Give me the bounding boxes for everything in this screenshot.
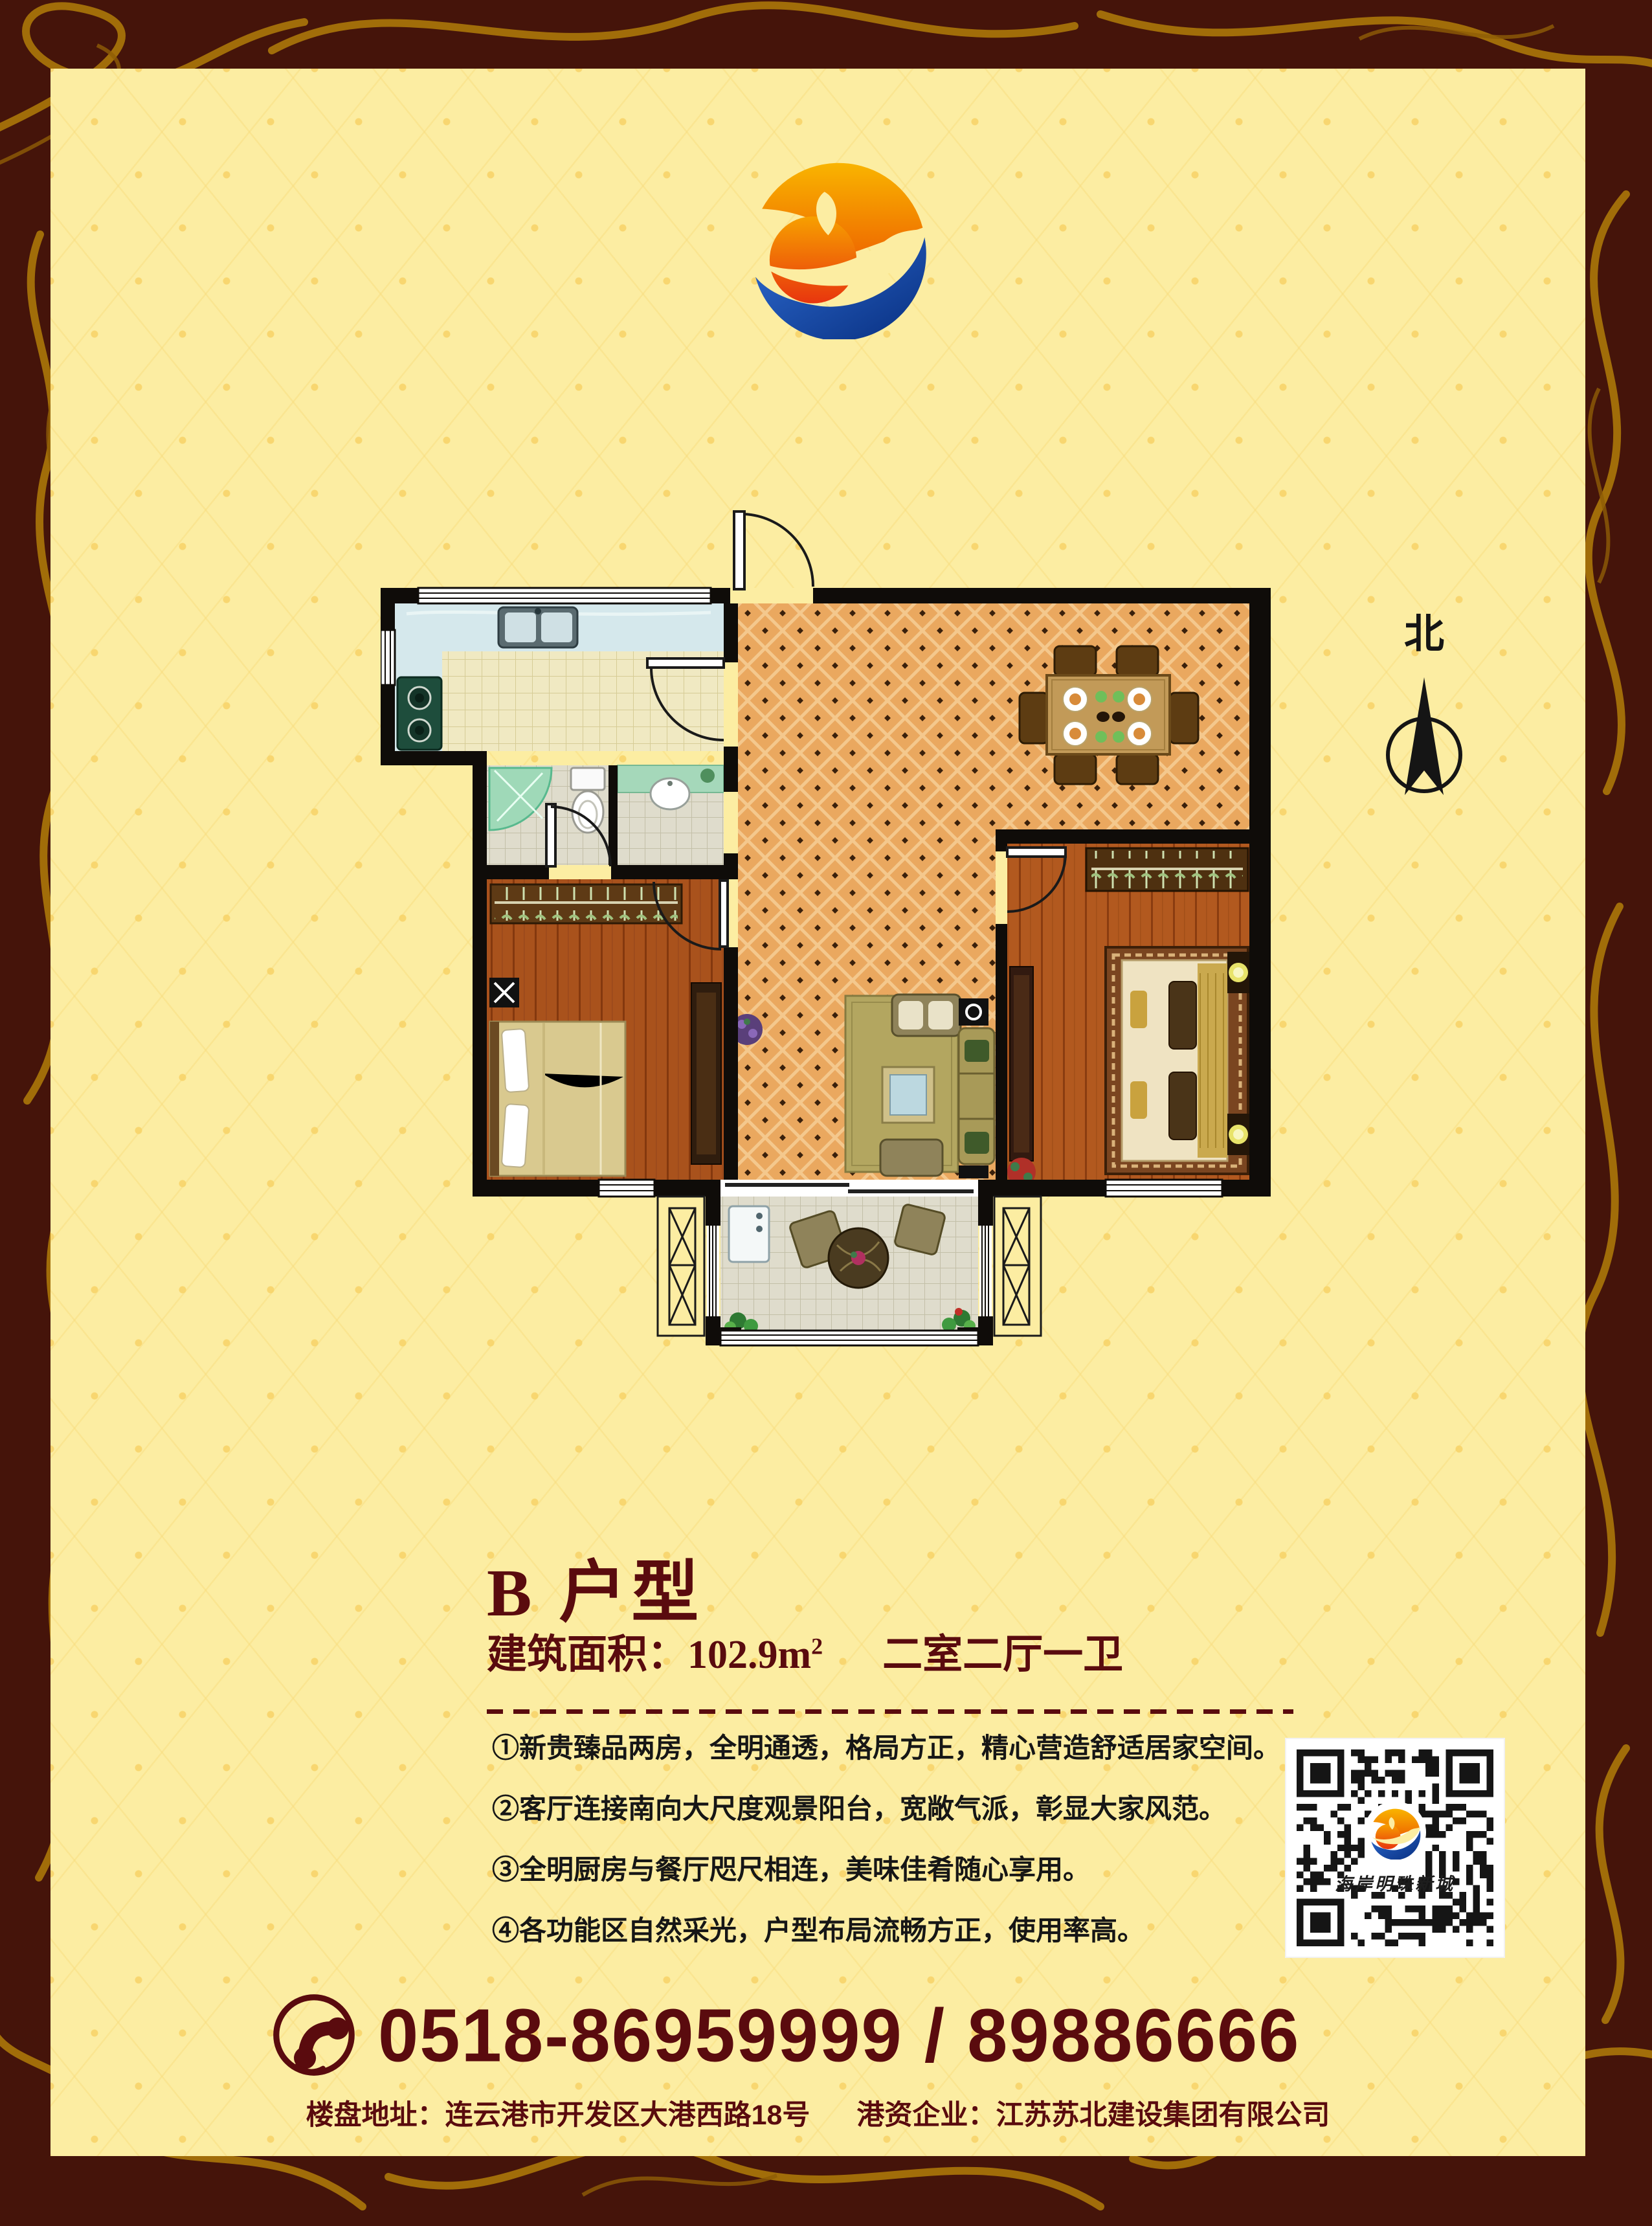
feature-item-1: ①新贵臻品两房，全明通透，格局方正，精心营造舒适居家空间。 — [492, 1734, 1334, 1762]
feature-item-4: ④各功能区自然采光，户型布局流畅方正，使用率高。 — [492, 1917, 1334, 1945]
feature-item-2: ②客厅连接南向大尺度观景阳台，宽敞气派，彰显大家风范。 — [492, 1795, 1334, 1823]
area-label: 建筑面积： — [487, 1633, 687, 1677]
phone-row: 0518-86959999 / 89886666 — [268, 1989, 1300, 2081]
qr-caption: 海岸明珠新城 — [1285, 1870, 1505, 1895]
floor-plan — [381, 491, 1274, 1352]
layout-text: 二室二厅一卫 — [882, 1633, 1123, 1677]
qr-code: 海岸明珠新城 — [1285, 1738, 1505, 1958]
address-row: 楼盘地址：连云港市开发区大港西路18号港资企业：江苏苏北建设集团有限公司 — [50, 2093, 1585, 2133]
unit-specs: 建筑面积：102.9m2二室二厅一卫 — [487, 1621, 1123, 1680]
north-indicator: 北 — [1372, 601, 1476, 805]
dashed-divider — [487, 1709, 1293, 1714]
area-value: 102.9 — [687, 1633, 778, 1677]
north-label: 北 — [1372, 601, 1476, 659]
qr-center-logo — [1364, 1801, 1426, 1863]
unit-title: B 户型 — [487, 1537, 704, 1635]
feature-list: ①新贵臻品两房，全明通透，格局方正，精心营造舒适居家空间。 ②客厅连接南向大尺度… — [492, 1734, 1334, 1977]
brand-logo-icon — [743, 150, 932, 339]
content-panel: 北 — [50, 69, 1585, 2156]
feature-item-3: ③全明厨房与餐厅咫尺相连，美味佳肴随心享用。 — [492, 1856, 1334, 1884]
area-unit-exponent: 2 — [811, 1633, 823, 1659]
phone-icon — [268, 1989, 360, 2081]
address-text: 楼盘地址：连云港市开发区大港西路18号 — [306, 2100, 810, 2131]
company-text: 港资企业：江苏苏北建设集团有限公司 — [856, 2100, 1330, 2131]
real-estate-poster: { "colors": { "frame": "#45140a", "frame… — [0, 0, 1652, 2226]
phone-number: 0518-86959999 / 89886666 — [378, 1992, 1300, 2078]
compass-arrow-icon — [1376, 659, 1473, 802]
area-unit: m — [778, 1633, 812, 1677]
